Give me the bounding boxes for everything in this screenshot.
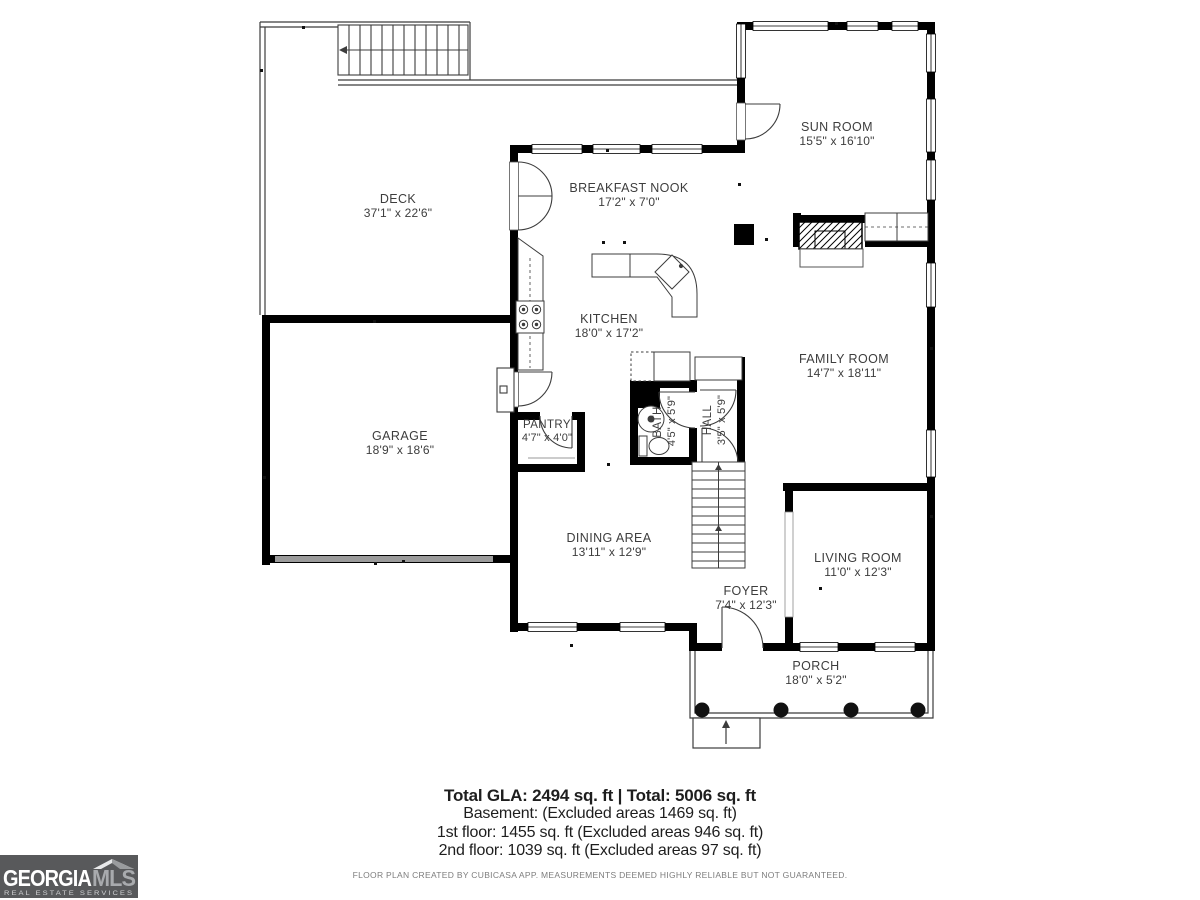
total-gla-line: Total GLA: 2494 sq. ft | Total: 5006 sq.… bbox=[0, 786, 1200, 805]
room-label-dining-area: DINING AREA bbox=[567, 531, 652, 545]
room-dims-sun-room: 15'5" x 16'10" bbox=[799, 134, 874, 148]
room-label-family-room: FAMILY ROOM bbox=[799, 352, 889, 366]
room-label-garage: GARAGE bbox=[372, 429, 428, 443]
second-floor-line: 2nd floor: 1039 sq. ft (Excluded areas 9… bbox=[0, 842, 1200, 861]
room-label-hall: HALL bbox=[702, 405, 714, 436]
logo-tagline-text: REAL ESTATE SERVICES bbox=[4, 891, 134, 897]
room-dims-deck: 37'1" x 22'6" bbox=[364, 206, 432, 220]
room-label-kitchen: KITCHEN bbox=[580, 312, 638, 326]
room-label-pantry: PANTRY bbox=[523, 419, 571, 431]
kitchen-fixtures bbox=[516, 238, 742, 381]
logo-mls-text: MLS bbox=[92, 865, 136, 891]
disclaimer-text: FLOOR PLAN CREATED BY CUBICASA APP. MEAS… bbox=[0, 870, 1200, 880]
room-dims-porch: 18'0" x 5'2" bbox=[785, 673, 847, 687]
garage-door bbox=[275, 556, 493, 562]
room-label-deck: DECK bbox=[380, 192, 417, 206]
room-dims-garage: 18'9" x 18'6" bbox=[366, 443, 434, 457]
floor-plan-page: DECK 37'1" x 22'6" SUN ROOM 15'5" x 16'1… bbox=[0, 0, 1200, 900]
room-dims-hall: 3'5" x 5'9" bbox=[716, 395, 728, 445]
room-dims-pantry: 4'7" x 4'0" bbox=[522, 432, 572, 444]
room-label-sun-room: SUN ROOM bbox=[801, 120, 873, 134]
room-dims-breakfast-nook: 17'2" x 7'0" bbox=[598, 195, 660, 209]
first-floor-line: 1st floor: 1455 sq. ft (Excluded areas 9… bbox=[0, 824, 1200, 843]
logo-georgia-text: GEORGIA bbox=[3, 865, 91, 891]
room-dims-dining-area: 13'11" x 12'9" bbox=[572, 545, 646, 559]
porch-columns bbox=[695, 703, 926, 718]
living-room-opening bbox=[785, 512, 793, 617]
room-dims-living-room: 11'0" x 12'3" bbox=[824, 565, 892, 579]
georgia-mls-logo: GEORGIA MLS REAL ESTATE SERVICES bbox=[0, 855, 138, 898]
area-summary: Total GLA: 2494 sq. ft | Total: 5006 sq.… bbox=[0, 786, 1200, 861]
main-staircase bbox=[692, 462, 745, 568]
room-label-living-room: LIVING ROOM bbox=[814, 551, 902, 565]
room-dims-foyer: 7'4" x 12'3" bbox=[715, 598, 777, 612]
room-dims-bath: 4'5" x 5'9" bbox=[666, 396, 678, 446]
room-dims-family-room: 14'7" x 18'11" bbox=[807, 366, 881, 380]
room-label-foyer: FOYER bbox=[723, 584, 768, 598]
room-label-bath: BATH bbox=[652, 406, 664, 437]
floor-plan-drawing: DECK 37'1" x 22'6" SUN ROOM 15'5" x 16'1… bbox=[0, 0, 1200, 900]
room-label-breakfast-nook: BREAKFAST NOOK bbox=[569, 181, 689, 195]
deck-stairs bbox=[338, 25, 468, 75]
room-label-porch: PORCH bbox=[792, 659, 839, 673]
room-dims-kitchen: 18'0" x 17'2" bbox=[575, 326, 643, 340]
basement-line: Basement: (Excluded areas 1469 sq. ft) bbox=[0, 805, 1200, 824]
